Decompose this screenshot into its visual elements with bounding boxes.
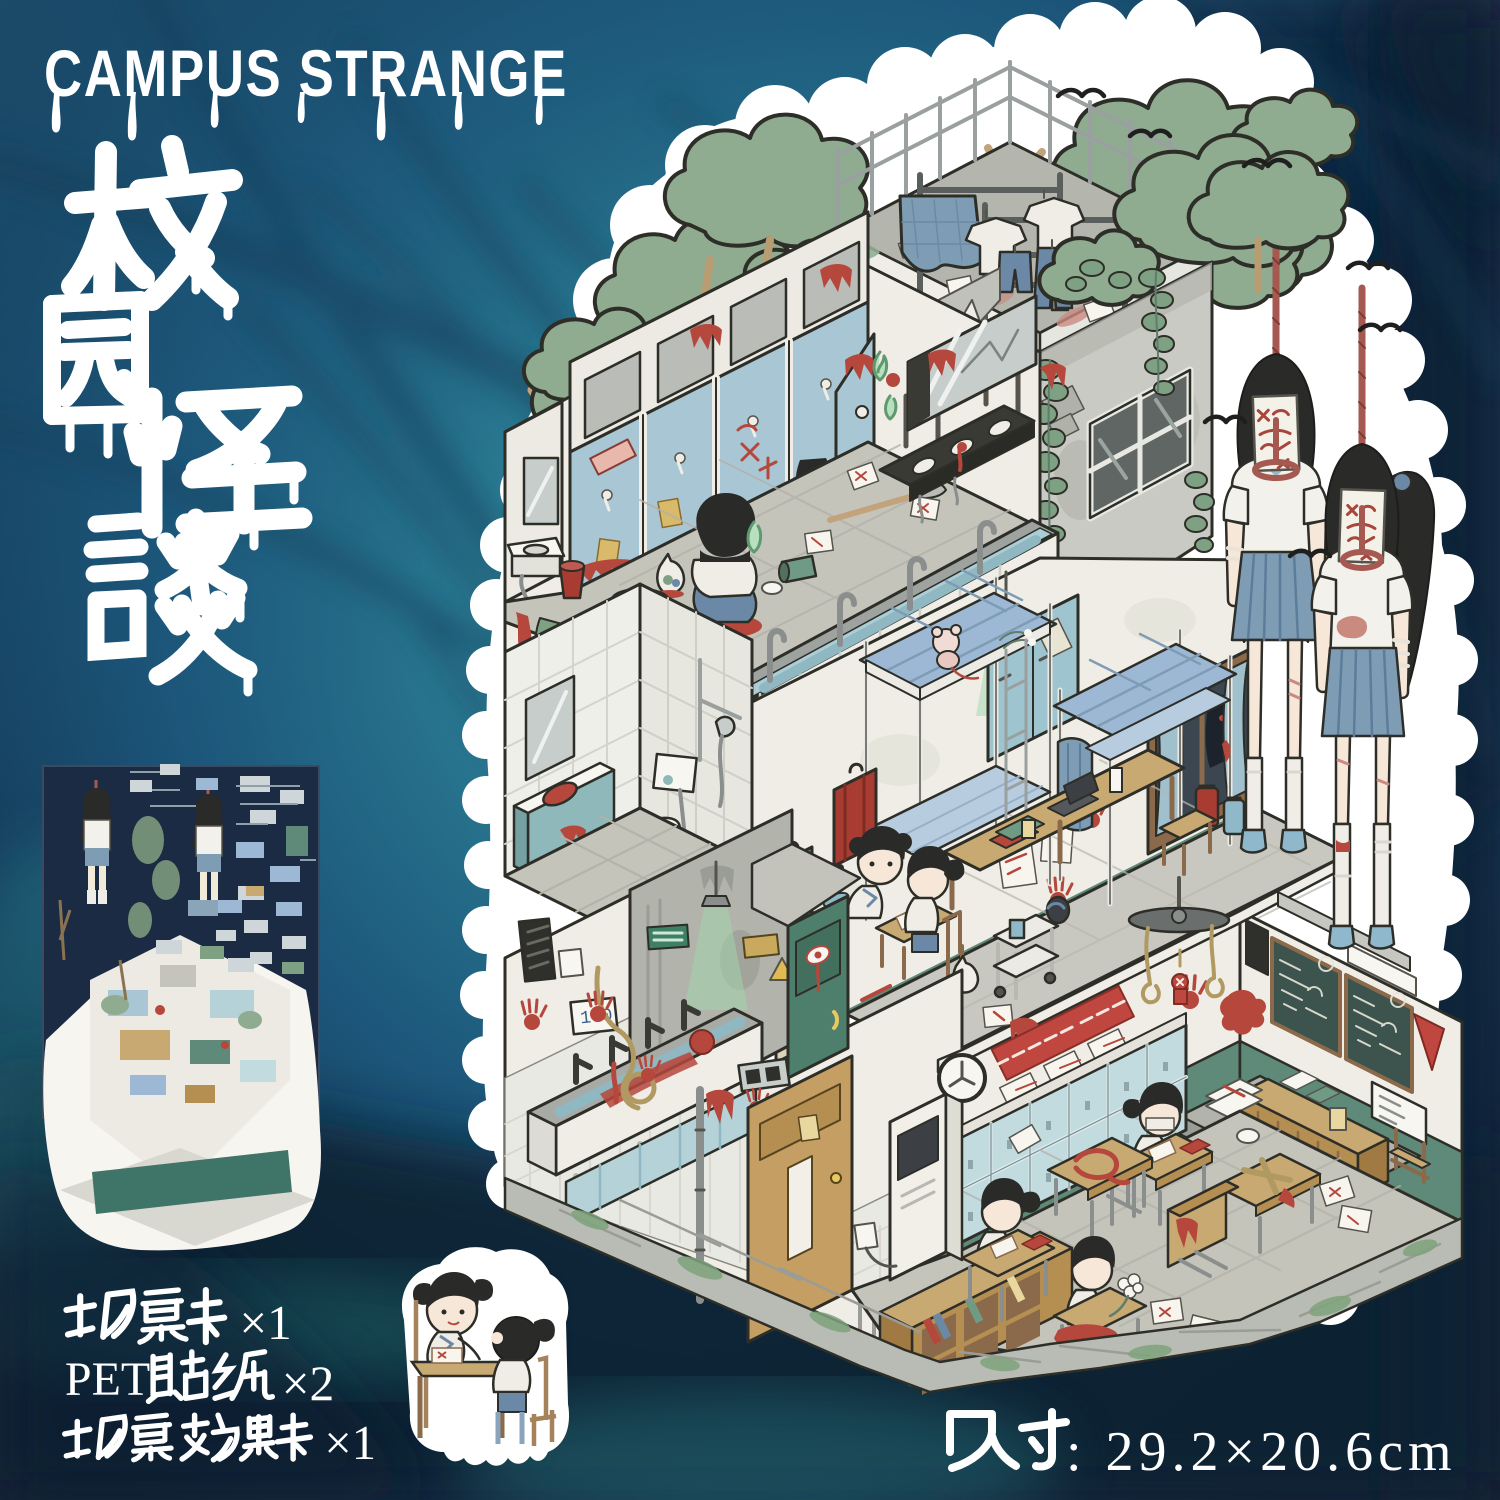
svg-text:×1: ×1 [324, 1417, 376, 1470]
svg-text:: 29.2×20.6cm: : 29.2×20.6cm [1066, 1421, 1457, 1483]
svg-text:×2: ×2 [282, 1356, 335, 1411]
svg-text:CAMPUS STRANGE: CAMPUS STRANGE [44, 36, 568, 110]
svg-text:×1: ×1 [240, 1295, 292, 1350]
svg-text:PET: PET [65, 1353, 150, 1406]
